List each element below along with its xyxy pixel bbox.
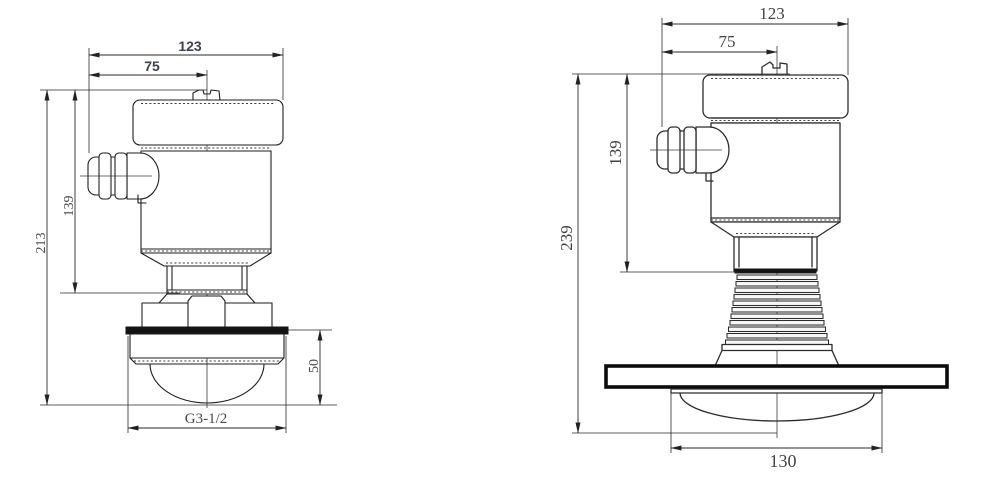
thread-ring [729,327,826,332]
neck [734,237,817,271]
thread-ring [737,275,817,280]
thread-boss [188,296,225,327]
top-tab [193,90,220,100]
dome-holder-ring [671,389,882,393]
dim-label-height-housing: 139 [606,140,625,166]
threaded-section [726,275,829,345]
flange-plate [606,366,947,387]
dim-label-antenna-height: 50 [307,359,322,373]
right-dimensions: 123 75 239 139 130 [557,4,882,471]
right-drawing: 123 75 239 139 130 [557,4,947,471]
thread-ring [727,334,827,339]
cable-gland [80,153,159,203]
dim-label-height-overall: 239 [557,225,576,251]
dim-label-width-overall: 123 [759,4,785,23]
dim-label-height-overall: 213 [34,233,49,254]
housing-body [141,151,271,253]
dim-label-antenna-width: 130 [770,451,797,471]
housing-cap [133,100,283,145]
thread-base-step [722,345,832,351]
thread-ring [736,282,818,287]
sensor-outline [80,90,288,403]
thread-ring [730,321,824,326]
thread-ring [733,301,821,306]
thread-top-band [735,269,816,273]
thread-ring [731,314,823,319]
sensor-outline [606,62,947,421]
shoulder-taper [141,253,271,266]
top-tab [762,62,787,75]
housing-body [711,123,840,222]
thread-ring [735,288,819,293]
dim-label-width-overall: 123 [178,38,202,54]
thread-ring [734,295,820,300]
antenna-horn [130,334,284,358]
left-drawing: 123 75 213 139 50 G3-1/2 [34,38,337,433]
housing-cap [703,75,848,118]
dim-label-width-to-center: 75 [719,32,736,51]
radar-level-sensor-drawings: 123 75 213 139 50 G3-1/2 [0,0,983,487]
thread-ring [732,308,822,313]
flange-ring-band [126,327,288,334]
dim-label-width-to-center: 75 [144,58,160,74]
dim-label-height-housing: 139 [62,196,77,217]
antenna-extension-lines [671,393,882,453]
technical-drawing-canvas: 123 75 213 139 50 G3-1/2 [0,0,983,487]
thread-ring [726,340,829,345]
dim-label-thread-size: G3-1/2 [185,411,228,427]
shoulder-taper [711,222,840,237]
